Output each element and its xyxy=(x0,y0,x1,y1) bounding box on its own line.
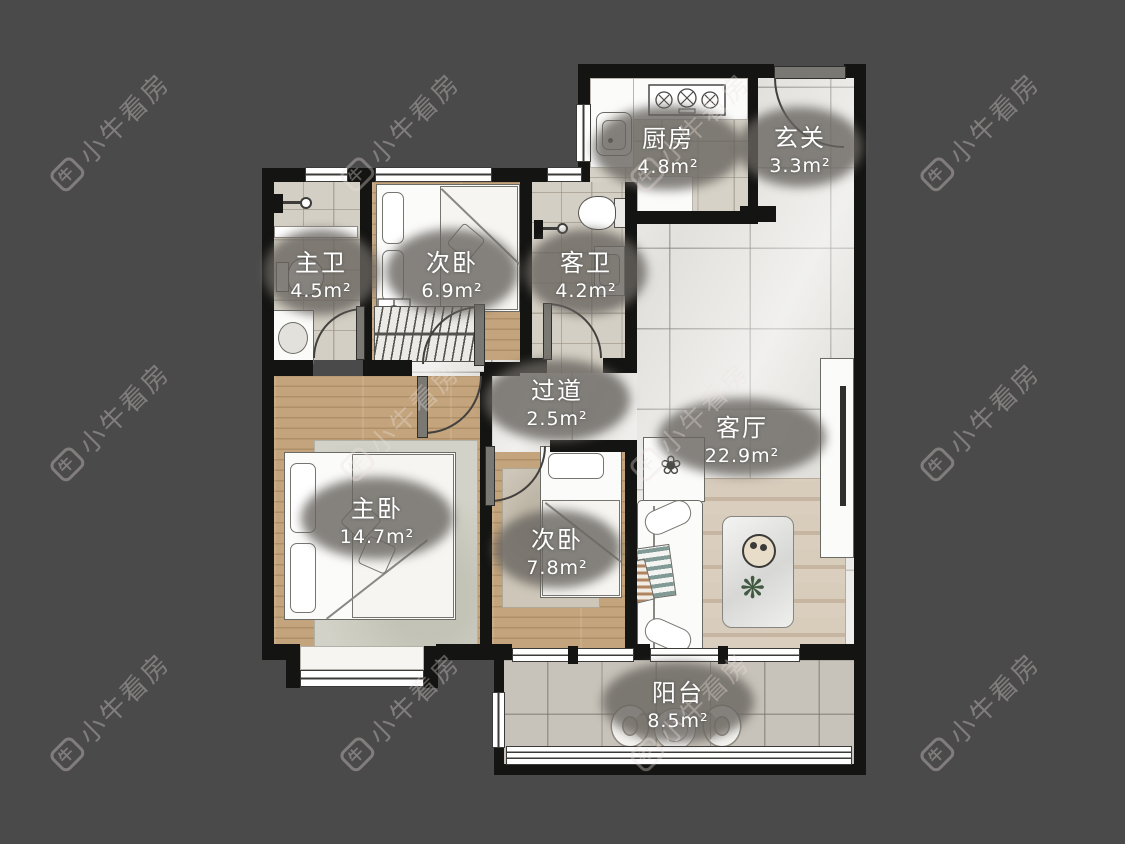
room-label-master-bathroom: 主卫 4.5m² xyxy=(263,229,379,315)
wall xyxy=(634,644,650,660)
room-area: 14.7m² xyxy=(340,526,414,548)
room-name: 次卧 xyxy=(426,243,478,278)
wall xyxy=(286,646,300,688)
window xyxy=(576,104,591,162)
room-name: 过道 xyxy=(531,371,583,406)
wall xyxy=(494,656,504,692)
room-label-second-bedroom-north: 次卧 6.9m² xyxy=(386,229,518,315)
guest-toilet-icon xyxy=(578,196,616,230)
room-area: 22.9m² xyxy=(705,445,779,467)
room-area: 7.8m² xyxy=(526,557,587,579)
watermark-cow-icon: 牛 xyxy=(917,154,957,194)
watermark-cow-icon: 牛 xyxy=(47,734,87,774)
watermark-cow-icon: 牛 xyxy=(917,444,957,484)
watermark-text: 小牛看房 xyxy=(69,643,177,751)
watermark: 牛小牛看房 xyxy=(913,63,1047,197)
watermark-text: 小牛看房 xyxy=(939,643,1047,751)
watermark-cow-icon: 牛 xyxy=(917,734,957,774)
window xyxy=(547,167,582,182)
watermark-text: 小牛看房 xyxy=(359,63,467,171)
bed-second-pillow xyxy=(548,453,604,479)
bathroom-sink-basin xyxy=(278,322,308,354)
room-area: 3.3m² xyxy=(769,155,830,177)
watermark-cow-icon: 牛 xyxy=(47,154,87,194)
wall xyxy=(550,440,637,452)
wall xyxy=(492,168,547,182)
wall xyxy=(494,764,866,775)
room-area: 2.5m² xyxy=(526,408,587,430)
balcony-side-window xyxy=(492,692,505,748)
second-bedroom-door-leaf xyxy=(485,446,495,506)
tray-cup-1 xyxy=(750,542,757,549)
watermark: 牛小牛看房 xyxy=(913,353,1047,487)
room-label-second-bedroom: 次卧 7.8m² xyxy=(493,510,621,588)
shower-head xyxy=(300,197,312,209)
wall xyxy=(625,211,758,224)
watermark: 牛小牛看房 xyxy=(913,643,1047,777)
tv-icon xyxy=(840,386,846,506)
room-label-foyer: 玄关 3.3m² xyxy=(737,107,863,187)
wall xyxy=(262,360,313,376)
watermark-text: 小牛看房 xyxy=(939,63,1047,171)
floor-plan: ❀ ❋ xyxy=(0,0,1125,844)
wall xyxy=(582,168,590,182)
bay-window-sill xyxy=(300,646,424,670)
wall xyxy=(578,64,590,104)
sliding-door-stop xyxy=(568,646,578,664)
window xyxy=(375,167,492,182)
room-name: 客卫 xyxy=(560,243,612,278)
watermark-text: 小牛看房 xyxy=(69,63,177,171)
watermark: 牛小牛看房 xyxy=(43,353,177,487)
watermark: 牛小牛看房 xyxy=(43,643,177,777)
room-area: 4.5m² xyxy=(290,280,351,302)
wall xyxy=(800,644,866,660)
shower-head-icon xyxy=(274,194,283,213)
room-label-guest-bathroom: 客卫 4.2m² xyxy=(525,229,647,315)
wall xyxy=(363,360,412,376)
room-label-hallway: 过道 2.5m² xyxy=(484,359,630,441)
room-name: 主卫 xyxy=(295,243,347,278)
room-area: 6.9m² xyxy=(421,280,482,302)
balcony-window xyxy=(506,746,852,765)
coffee-table-plant-icon: ❋ xyxy=(740,574,765,604)
room-area: 4.2m² xyxy=(555,280,616,302)
room-name: 次卧 xyxy=(531,520,583,555)
room-name: 玄关 xyxy=(774,118,826,153)
watermark-text: 小牛看房 xyxy=(939,353,1047,461)
watermark-text: 小牛看房 xyxy=(69,353,177,461)
watermark-cow-icon: 牛 xyxy=(337,734,377,774)
coffee-table-tray xyxy=(742,534,776,568)
watermark-cow-icon: 牛 xyxy=(47,444,87,484)
room-label-master-bedroom: 主卧 14.7m² xyxy=(301,477,453,559)
watermark: 牛小牛看房 xyxy=(43,63,177,197)
tray-cup-2 xyxy=(760,544,767,551)
room-name: 主卧 xyxy=(351,489,403,524)
